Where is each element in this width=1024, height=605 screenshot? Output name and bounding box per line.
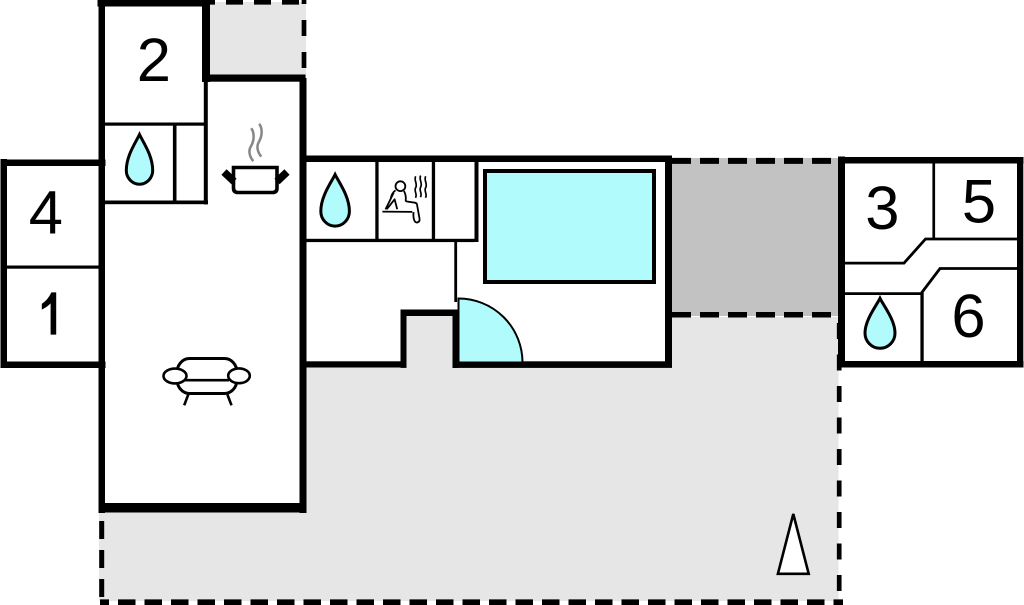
svg-text:2: 2 bbox=[137, 26, 171, 95]
svg-text:3: 3 bbox=[865, 174, 899, 243]
svg-text:6: 6 bbox=[951, 282, 985, 351]
svg-text:4: 4 bbox=[29, 179, 63, 248]
svg-text:5: 5 bbox=[962, 168, 996, 237]
